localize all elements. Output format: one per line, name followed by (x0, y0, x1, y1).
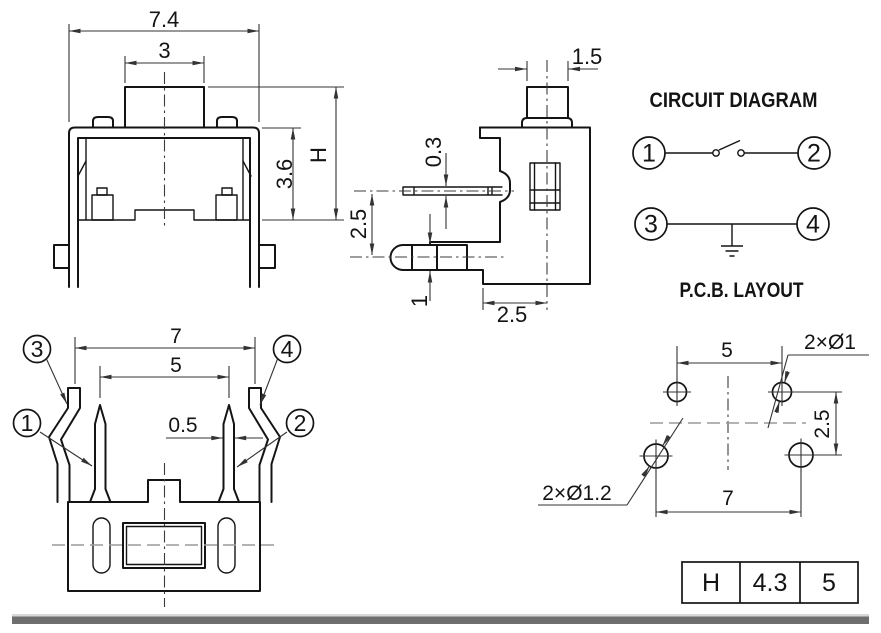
dim-label-bottom-pitch: 7 (722, 487, 734, 510)
foot-left (54, 245, 69, 268)
dim-label-side-button: 1.5 (572, 44, 603, 69)
spec-table: H 4.3 5 (682, 562, 858, 603)
dim-label-inner-pitch: 5 (170, 354, 182, 377)
label-large-holes: 2×Ø1.2 (542, 482, 611, 505)
body-step (480, 128, 500, 172)
terminal-label-1: 1 (642, 140, 656, 168)
pcb-centerlines (650, 376, 806, 470)
inner-pin-right (219, 405, 240, 502)
footer-bar (12, 614, 869, 624)
callout-label-2: 2 (294, 410, 307, 436)
foot-right (259, 245, 275, 268)
front-view: 7.4 3 3.6 H (54, 7, 344, 287)
terminal-label-2: 2 (807, 140, 821, 168)
table-cell-value-2: 5 (822, 569, 836, 597)
dim-label-total-width: 7.4 (149, 7, 180, 32)
side-view: 1.5 0.3 2.5 1 2.5 (346, 44, 602, 327)
dim-label-pin-width: 0.5 (168, 414, 197, 437)
dim-label-pin-spacing: 2.5 (346, 209, 371, 240)
switch-contact-symbol (665, 141, 798, 157)
dim-label-pin-thickness: 0.3 (421, 137, 446, 168)
dim-label-lower-pin: 1 (407, 295, 432, 307)
ground-symbol (667, 224, 797, 256)
dim-label-bottom-offset: 2.5 (497, 302, 528, 327)
dim-label-top-pitch: 5 (721, 339, 733, 362)
pcb-layout: P.C.B. LAYOUT 5 7 2.5 (538, 279, 869, 517)
callout-label-4: 4 (281, 336, 294, 362)
terminal-label-4: 4 (806, 211, 820, 239)
dim-label-outer-pitch: 7 (170, 325, 182, 348)
callout-label-3: 3 (31, 336, 44, 362)
label-small-holes: 2×Ø1 (804, 331, 856, 354)
top-pip-left (93, 117, 113, 127)
side-view-dimensions (372, 61, 598, 310)
front-view-dimensions (69, 24, 344, 220)
footer-bar-highlight (12, 614, 869, 617)
bottom-centerlines (52, 463, 277, 607)
outer-pin-left (49, 388, 80, 502)
body-left (430, 171, 510, 245)
drawing-canvas: 7.4 3 3.6 H (0, 0, 881, 633)
table-cell-h: H (702, 569, 720, 597)
outer-pin-right (249, 388, 280, 502)
contact-window (530, 163, 560, 210)
inner-pin-left (90, 405, 111, 502)
circuit-diagram-title: CIRCUIT DIAGRAM (650, 89, 818, 112)
bottom-view: 7 5 0.5 3 4 1 2 (14, 325, 314, 607)
side-centerlines (350, 60, 547, 310)
table-cell-value-1: 4.3 (753, 569, 788, 597)
footer-bar-rule (12, 617, 869, 625)
body-right (467, 128, 590, 285)
side-view-outline (390, 87, 590, 284)
circuit-symbols (633, 137, 830, 256)
dim-label-button-width: 3 (158, 38, 170, 63)
dim-label-body-height: 3.6 (272, 159, 297, 190)
terminal-label-3: 3 (644, 211, 658, 239)
technical-drawing-page: 7.4 3 3.6 H (0, 0, 881, 633)
top-pip-right (217, 117, 237, 127)
dim-label-row-pitch: 2.5 (811, 409, 834, 438)
pcb-layout-title: P.C.B. LAYOUT (680, 279, 804, 302)
dim-label-total-height: H (306, 147, 331, 163)
callout-label-1: 1 (21, 410, 34, 436)
circuit-diagram: CIRCUIT DIAGRAM 1 2 3 4 (633, 89, 830, 256)
